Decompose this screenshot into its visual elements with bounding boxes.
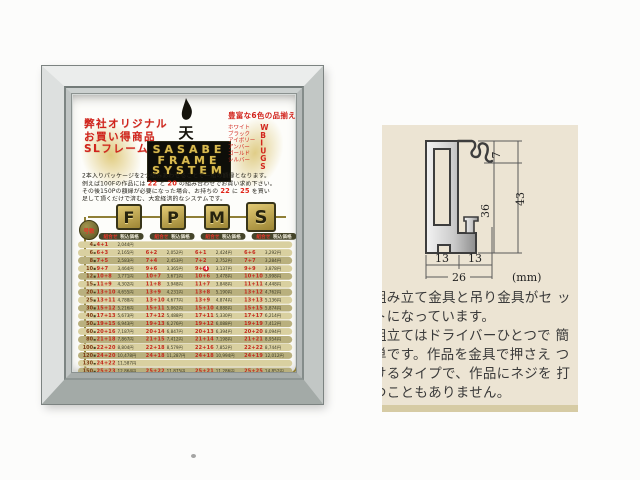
table-row: 13024+2211,587円 <box>78 360 292 367</box>
highlighted-combination-digit: 4 <box>203 266 209 272</box>
price-value: 3,292円 <box>265 250 281 256</box>
table-row: 66+32,165円6+22,052円6+12,424円6+63,292円 <box>78 249 292 256</box>
combination-value: 24+19 <box>244 353 265 359</box>
description-line: 組み立て金具と吊り金具がセ ッ <box>382 289 578 308</box>
dimension-label-width: 26 <box>452 271 466 283</box>
price-cell: 6+22,052円 <box>146 250 194 256</box>
description-line: けるタイプで、作品にネジを 打 <box>382 365 578 384</box>
price-cell: 7+42,453円 <box>146 258 194 264</box>
color-name: シルバー <box>228 157 255 164</box>
row-size-label: 80 <box>82 337 95 343</box>
table-row: 6020+167,187円20+146,847円20+136,394円20+20… <box>78 328 292 335</box>
price-cell: 19+197,412円 <box>244 321 292 327</box>
row-size-label: 100 <box>82 345 95 351</box>
price-value: 8,954円 <box>265 337 281 343</box>
intro-line: その後150Pの額縁が必要になった場合、お持ちの 22 に 25 を買い <box>82 187 296 195</box>
price-value: 6,088円 <box>216 321 232 327</box>
price-cell: 19+156,943円 <box>97 321 145 327</box>
price-value: 6,214円 <box>265 313 281 319</box>
price-value: 4,302円 <box>117 281 133 287</box>
combination-value: 13+10 <box>146 297 167 303</box>
table-row: 3015+125,216円15+115,062円15+104,888円15+15… <box>78 305 292 312</box>
combination-value: 19+12 <box>195 321 216 327</box>
price-cell: 13+94,231円 <box>146 289 194 295</box>
combination-value: 10+6 <box>195 274 216 280</box>
column-header-price: 税込価格 <box>222 233 241 240</box>
price-value: 3,671円 <box>167 274 183 280</box>
price-value: 3,464円 <box>117 266 133 272</box>
combination-value: 17+11 <box>195 313 216 319</box>
combination-value: 9+6 <box>146 266 167 272</box>
combination-value: 11+11 <box>244 281 265 287</box>
column-header-pill: 組合せ税込価格 <box>201 233 246 240</box>
price-cell: 11+83,948円 <box>146 281 194 287</box>
combination-value: 21+18 <box>97 337 118 343</box>
price-value: 10,994円 <box>216 353 235 359</box>
price-value: 10,478円 <box>117 353 136 359</box>
price-cell: 13+135,136円 <box>244 297 292 303</box>
row-size-label: 60 <box>82 329 95 335</box>
price-cell: 6+32,165円 <box>97 250 145 256</box>
table-row: 10022+208,804円22+188,579円22+167,852円22+2… <box>78 344 292 351</box>
table-row: 8021+187,867円21+157,412円21+147,198円21+21… <box>78 336 292 343</box>
row-size-label: 4 <box>82 242 95 248</box>
price-value: 8,744円 <box>265 345 281 351</box>
price-value: 2,044円 <box>117 242 133 248</box>
price-cell: 20+136,394円 <box>195 329 243 335</box>
combination-value: 21+14 <box>195 337 216 343</box>
row-size-label: 10 <box>82 266 95 272</box>
profile-body <box>426 141 476 253</box>
price-value: 3,998円 <box>265 274 281 280</box>
combination-value: 9+7 <box>97 266 118 272</box>
price-cell: 24+1811,287円 <box>146 353 194 359</box>
combination-value: 24+18 <box>146 353 167 359</box>
price-cell: 13+114,788円 <box>97 297 145 303</box>
price-cell: 10+63,478円 <box>195 274 243 280</box>
price-value: 3,284円 <box>265 258 281 264</box>
row-size-label: 120 <box>82 353 95 359</box>
combination-value: 25+23 <box>97 368 118 372</box>
price-cell: 9+73,464円 <box>97 266 145 272</box>
system-letter-p: P <box>160 204 186 230</box>
price-value: 3,948円 <box>167 281 183 287</box>
price-cell: 24+2010,478円 <box>97 353 145 359</box>
combination-value: 11+8 <box>146 281 167 287</box>
price-cell: 21+187,867円 <box>97 337 145 343</box>
price-value: 4,655円 <box>117 289 133 295</box>
combination-value: 13+9 <box>195 297 216 303</box>
price-cell: 13+104,655円 <box>97 289 145 295</box>
price-cell: 9+93,878円 <box>244 266 292 272</box>
frame-lip: 弊社オリジナルお買い得商品SLフレーム 天 SASABEFRAMESYSTEM … <box>66 88 302 378</box>
description-line: つこともありません。 <box>382 384 578 403</box>
price-value: 2,165円 <box>117 250 133 256</box>
price-value: 3,478円 <box>216 274 232 280</box>
price-value: 5,190円 <box>216 289 232 295</box>
poster: 弊社オリジナルお買い得商品SLフレーム 天 SASABEFRAMESYSTEM … <box>72 94 296 372</box>
combination-value: 22+22 <box>244 345 265 351</box>
row-size-label: 150 <box>82 368 95 372</box>
price-value: 6,943円 <box>117 321 133 327</box>
price-cell: 20+167,187円 <box>97 329 145 335</box>
highlighted-size-number: 22 <box>220 186 230 194</box>
combination-value: 13+13 <box>244 297 265 303</box>
table-row: 15025+2312,864円25+2211,875円25+2111,286円2… <box>78 368 292 372</box>
table-row: 2513+114,788円13+104,677円13+94,874円13+135… <box>78 297 292 304</box>
price-value: 7,198円 <box>216 337 232 343</box>
combination-value: 21+15 <box>146 337 167 343</box>
intro-text: 足して頂くだけで済む、大変経済的なシステムです。 <box>82 195 226 202</box>
price-cell: 6+63,292円 <box>244 250 292 256</box>
combination-value: 25+22 <box>146 368 167 372</box>
combination-value: 24+18 <box>195 353 216 359</box>
combination-value: 19+13 <box>146 321 167 327</box>
combination-value: 10+10 <box>244 274 265 280</box>
price-cell: 25+2514,852円 <box>244 368 292 372</box>
highlighted-size-number: 25 <box>240 186 250 194</box>
combination-value: 15+15 <box>244 305 265 311</box>
table-row: 2013+104,655円13+94,231円13+85,190円13+124,… <box>78 289 292 296</box>
table-row: 12024+2010,478円24+1811,287円24+1810,994円2… <box>78 352 292 359</box>
combination-value: 17+12 <box>146 313 167 319</box>
price-cell: 20+208,094円 <box>244 329 292 335</box>
price-value: 2,583円 <box>117 258 133 264</box>
price-cell: 13+124,762円 <box>244 289 292 295</box>
price-cell: 19+126,088円 <box>195 321 243 327</box>
combination-value: 10+8 <box>97 274 118 280</box>
scan-artifact <box>191 454 196 458</box>
description-line: 単です。作品を金具で押さえ つ <box>382 346 578 365</box>
price-cell: 11+73,848円 <box>195 281 243 287</box>
svg-text:天: 天 <box>178 124 194 142</box>
price-cell: 19+136,276円 <box>146 321 194 327</box>
price-value: 8,579円 <box>167 345 183 351</box>
flame-mark-icon: 天 <box>173 96 199 144</box>
price-value: 11,587円 <box>117 360 136 366</box>
row-size-label: 12 <box>82 274 95 280</box>
price-cell: 24+2211,587円 <box>97 360 145 366</box>
combination-value: 20+20 <box>244 329 265 335</box>
dimension-unit-label: (mm) <box>512 271 541 283</box>
price-value: 12,012円 <box>265 353 284 359</box>
combination-value: 17+17 <box>244 313 265 319</box>
price-value: 3,365円 <box>167 266 183 272</box>
column-header-pill: 組合せ税込価格 <box>252 233 296 240</box>
spec-panel: 7 36 43 13 13 26 (mm) 組み立て金具と吊り金具がセ ットにな… <box>382 125 578 412</box>
price-value: 4,231円 <box>167 289 183 295</box>
column-header-price: 税込価格 <box>171 233 190 240</box>
combination-value: 7+2 <box>195 258 216 264</box>
price-value: 11,287円 <box>167 353 186 359</box>
table-row: 1511+94,302円11+83,948円11+73,848円11+114,4… <box>78 281 292 288</box>
price-value: 7,187円 <box>117 329 133 335</box>
price-cell: 6+12,424円 <box>195 250 243 256</box>
combination-value: 7+4 <box>146 258 167 264</box>
price-value: 6,276円 <box>167 321 183 327</box>
frame-seam: 弊社オリジナルお買い得商品SLフレーム 天 SASABEFRAMESYSTEM … <box>64 86 304 380</box>
dimension-label-left: 13 <box>435 252 449 265</box>
price-cell: 15+104,888円 <box>195 305 243 311</box>
price-cell: 22+208,804円 <box>97 345 145 351</box>
combination-value: 21+21 <box>244 337 265 343</box>
price-cell: 9+63,365円 <box>146 266 194 272</box>
color-name-list: ホワイトブラックアイボリーアンバーゴールドシルバー <box>228 124 255 171</box>
column-header-pill: 組合せ税込価格 <box>150 233 195 240</box>
column-header-price: 税込価格 <box>120 233 139 240</box>
color-code: S <box>260 163 268 171</box>
price-value: 5,673円 <box>117 313 133 319</box>
combination-value: 6+1 <box>195 250 216 256</box>
dimension-label-right: 13 <box>468 252 482 265</box>
row-size-label: 8 <box>82 258 95 264</box>
description-text: 組み立て金具と吊り金具がセ ットになっています。組立てはドライバーひとつで 簡単… <box>382 289 578 403</box>
color-code-list: WBIUGS <box>260 124 268 171</box>
combination-value: 17+13 <box>97 313 118 319</box>
price-value: 7,852円 <box>216 345 232 351</box>
price-cell: 22+167,852円 <box>195 345 243 351</box>
price-cell: 11+94,302円 <box>97 281 145 287</box>
dimension-label-hook: 7 <box>490 152 503 159</box>
price-value: 5,136円 <box>265 297 281 303</box>
price-cell: 10+83,771円 <box>97 274 145 280</box>
price-cell: 22+188,579円 <box>146 345 194 351</box>
price-cell: 15+125,216円 <box>97 305 145 311</box>
table-row: 5019+156,943円19+136,276円19+126,088円19+19… <box>78 320 292 327</box>
combination-value: 6+6 <box>244 250 265 256</box>
price-value: 5,488円 <box>167 313 183 319</box>
table-row: 87+52,583円7+42,453円7+22,752円7+73,284円 <box>78 257 292 264</box>
price-value: 6,847円 <box>167 329 183 335</box>
price-value: 11,286円 <box>216 368 235 372</box>
combination-value: 9+9 <box>244 266 265 272</box>
combination-value: 6+3 <box>97 250 118 256</box>
price-cell: 21+218,954円 <box>244 337 292 343</box>
price-cell: 7+73,284円 <box>244 258 292 264</box>
price-value: 4,874円 <box>216 297 232 303</box>
combination-value: 15+12 <box>97 305 118 311</box>
price-value: 3,771円 <box>117 274 133 280</box>
price-value: 12,864円 <box>117 368 136 372</box>
highlighted-size-number: 22 <box>148 179 158 187</box>
price-value: 2,453円 <box>167 258 183 264</box>
row-size-label: 50 <box>82 321 95 327</box>
price-cell: 20+146,847円 <box>146 329 194 335</box>
combination-value: 13+8 <box>195 289 216 295</box>
combination-value: 20+14 <box>146 329 167 335</box>
table-column-headers: 組合せ税込価格組合せ税込価格組合せ税込価格組合せ税込価格 <box>99 233 296 240</box>
price-value: 3,848円 <box>216 281 232 287</box>
combination-value: 22+18 <box>146 345 167 351</box>
price-cell: 15+115,062円 <box>146 305 194 311</box>
price-cell: 17+115,330円 <box>195 313 243 319</box>
combination-value: 19+19 <box>244 321 265 327</box>
dimension-label-inner: 36 <box>479 204 492 218</box>
price-cell: 15+155,874円 <box>244 305 292 311</box>
price-value: 2,052円 <box>167 250 183 256</box>
profile-glass-lip <box>464 217 478 233</box>
price-cell: 25+2211,875円 <box>146 368 194 372</box>
combination-value: 22+16 <box>195 345 216 351</box>
combination-value: 15+10 <box>195 305 216 311</box>
intro-text: その後150Pの額縁が必要になった場合、お持ちの <box>82 188 220 195</box>
table-row: 109+73,464円9+63,365円9+43,137円9+93,878円 <box>78 265 292 272</box>
price-cell: 21+147,198円 <box>195 337 243 343</box>
price-value: 3,137円 <box>216 266 232 272</box>
intro-paragraph: 2本入りパッケージを2つ組みあわせることで一組の額縁となります。例えば100Fの… <box>82 172 296 202</box>
column-header-price: 税込価格 <box>273 233 292 240</box>
price-cell: 22+228,744円 <box>244 345 292 351</box>
dimension-label-total: 43 <box>514 192 527 206</box>
row-size-label: 40 <box>82 313 95 319</box>
price-cell: 17+125,488円 <box>146 313 194 319</box>
row-size-label: 25 <box>82 297 95 303</box>
price-value: 6,394円 <box>216 329 232 335</box>
price-value: 5,874円 <box>265 305 281 311</box>
price-value: 8,094円 <box>265 329 281 335</box>
combination-value: 22+20 <box>97 345 118 351</box>
price-cell: 4+12,044円 <box>97 242 145 248</box>
profile-cross-section-diagram: 7 36 43 13 13 26 (mm) <box>382 125 578 283</box>
price-value: 7,412円 <box>167 337 183 343</box>
combination-value: 25+21 <box>195 368 216 372</box>
price-cell: 24+1912,012円 <box>244 353 292 359</box>
price-cell: 21+157,412円 <box>146 337 194 343</box>
system-letter-f: F <box>116 204 142 230</box>
price-cell: 13+94,874円 <box>195 297 243 303</box>
table-row: 1210+83,771円10+73,671円10+63,478円10+103,9… <box>78 273 292 280</box>
price-value: 3,878円 <box>265 266 281 272</box>
price-value: 4,448円 <box>265 281 281 287</box>
color-lineup-title: 豊富な6色の品揃え <box>228 110 296 121</box>
column-header-combination: 組合せ <box>154 233 168 240</box>
price-value: 4,762円 <box>265 289 281 295</box>
combination-value: 15+11 <box>146 305 167 311</box>
promo-line: 弊社オリジナル <box>84 118 168 131</box>
price-cell: 11+114,448円 <box>244 281 292 287</box>
frame-photo: 弊社オリジナルお買い得商品SLフレーム 天 SASABEFRAMESYSTEM … <box>42 66 323 404</box>
combination-value: 10+7 <box>146 274 167 280</box>
row-size-label: 6 <box>82 250 95 256</box>
price-value: 2,424円 <box>216 250 232 256</box>
price-cell: 17+135,673円 <box>97 313 145 319</box>
price-cell: 10+103,998円 <box>244 274 292 280</box>
combination-value: 13+11 <box>97 297 118 303</box>
price-value: 4,888円 <box>216 305 232 311</box>
combination-value: 24+20 <box>97 353 118 359</box>
price-value: 5,216円 <box>117 305 133 311</box>
profile-hook <box>458 141 492 162</box>
intro-text: を買い <box>250 188 270 195</box>
combination-value: 11+7 <box>195 281 216 287</box>
price-cell: 10+73,671円 <box>146 274 194 280</box>
description-line: 組立てはドライバーひとつで 簡 <box>382 327 578 346</box>
combination-value: 13+9 <box>146 289 167 295</box>
intro-text: 例えば100Fの作品には <box>82 180 148 187</box>
row-size-label: 15 <box>82 281 95 287</box>
table-row: 4017+135,673円17+125,488円17+115,330円17+17… <box>78 312 292 319</box>
system-letter-m: M <box>204 204 230 230</box>
price-cell: 9+43,137円 <box>195 266 243 272</box>
combination-value: 19+15 <box>97 321 118 327</box>
column-header-combination: 組合せ <box>256 233 270 240</box>
price-value: 7,867円 <box>117 337 133 343</box>
combination-value: 6+2 <box>146 250 167 256</box>
price-cell: 24+1810,994円 <box>195 353 243 359</box>
price-cell: 7+22,752円 <box>195 258 243 264</box>
price-cell: 13+85,190円 <box>195 289 243 295</box>
combination-value: 7+5 <box>97 258 118 264</box>
frame-moulding: 弊社オリジナルお買い得商品SLフレーム 天 SASABEFRAMESYSTEM … <box>42 66 323 404</box>
column-header-pill: 組合せ税込価格 <box>99 233 144 240</box>
description-line: トになっています。 <box>382 308 578 327</box>
column-header-combination: 組合せ <box>103 233 117 240</box>
row-size-label: 130 <box>82 360 95 366</box>
intro-line: 2本入りパッケージを2つ組みあわせることで一組の額縁となります。 <box>82 172 296 179</box>
price-cell: 25+2111,286円 <box>195 368 243 372</box>
intro-text: と <box>157 180 167 187</box>
price-cell: 25+2312,864円 <box>97 368 145 372</box>
price-value: 11,875円 <box>167 368 186 372</box>
row-size-label: 20 <box>82 289 95 295</box>
column-header-combination: 組合せ <box>205 233 219 240</box>
price-value: 4,677円 <box>167 297 183 303</box>
price-cell: 13+104,677円 <box>146 297 194 303</box>
combination-value: 13+10 <box>97 289 118 295</box>
price-value: 8,804円 <box>117 345 133 351</box>
combination-value: 11+9 <box>97 281 118 287</box>
intro-line: 例えば100Fの作品には 22 と 20 の組み合わせでお買い求め下さい。 <box>82 179 296 187</box>
combination-value: 24+22 <box>97 360 118 366</box>
combination-value: 13+12 <box>244 289 265 295</box>
combination-value: 20+13 <box>195 329 216 335</box>
row-size-label: 30 <box>82 305 95 311</box>
system-letter-s: S <box>246 202 276 232</box>
price-cell: 17+176,214円 <box>244 313 292 319</box>
combination-value: 9+4 <box>195 266 216 272</box>
price-value: 4,788円 <box>117 297 133 303</box>
combination-value: 20+16 <box>97 329 118 335</box>
price-value: 7,412円 <box>265 321 281 327</box>
price-value: 2,752円 <box>216 258 232 264</box>
price-value: 5,330円 <box>216 313 232 319</box>
combination-value: 4+1 <box>97 242 118 248</box>
size-price-table: 44+12,044円66+32,165円6+22,052円6+12,424円6+… <box>78 241 296 372</box>
price-value: 5,062円 <box>167 305 183 311</box>
highlighted-size-number: 20 <box>167 179 177 187</box>
combination-value: 25+25 <box>244 368 265 372</box>
intro-line: 足して頂くだけで済む、大変経済的なシステムです。 <box>82 195 296 202</box>
price-value: 14,852円 <box>265 368 284 372</box>
price-cell: 7+52,583円 <box>97 258 145 264</box>
combination-value: 7+7 <box>244 258 265 264</box>
intro-text: に <box>230 188 240 195</box>
table-row: 44+12,044円 <box>78 241 292 248</box>
frame-inner-edge: 弊社オリジナルお買い得商品SLフレーム 天 SASABEFRAMESYSTEM … <box>71 93 297 373</box>
